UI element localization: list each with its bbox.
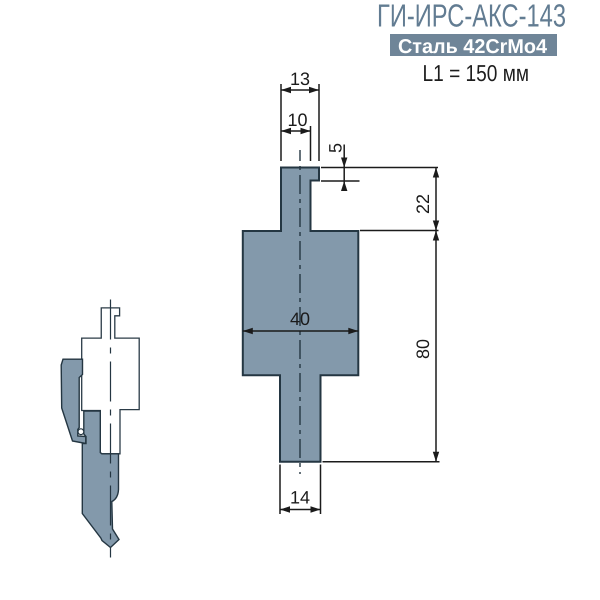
svg-text:13: 13 (290, 69, 310, 89)
svg-text:14: 14 (290, 488, 310, 508)
svg-text:40: 40 (290, 309, 310, 329)
svg-text:80: 80 (413, 339, 433, 359)
svg-text:5: 5 (326, 143, 346, 153)
svg-text:22: 22 (413, 194, 433, 214)
svg-text:Сталь 42CrMo4: Сталь 42CrMo4 (398, 36, 548, 58)
svg-text:10: 10 (287, 110, 307, 130)
svg-text:ГИ-ИРС-АКС-143: ГИ-ИРС-АКС-143 (377, 0, 566, 33)
svg-text:L1 = 150 мм: L1 = 150 мм (423, 60, 530, 86)
